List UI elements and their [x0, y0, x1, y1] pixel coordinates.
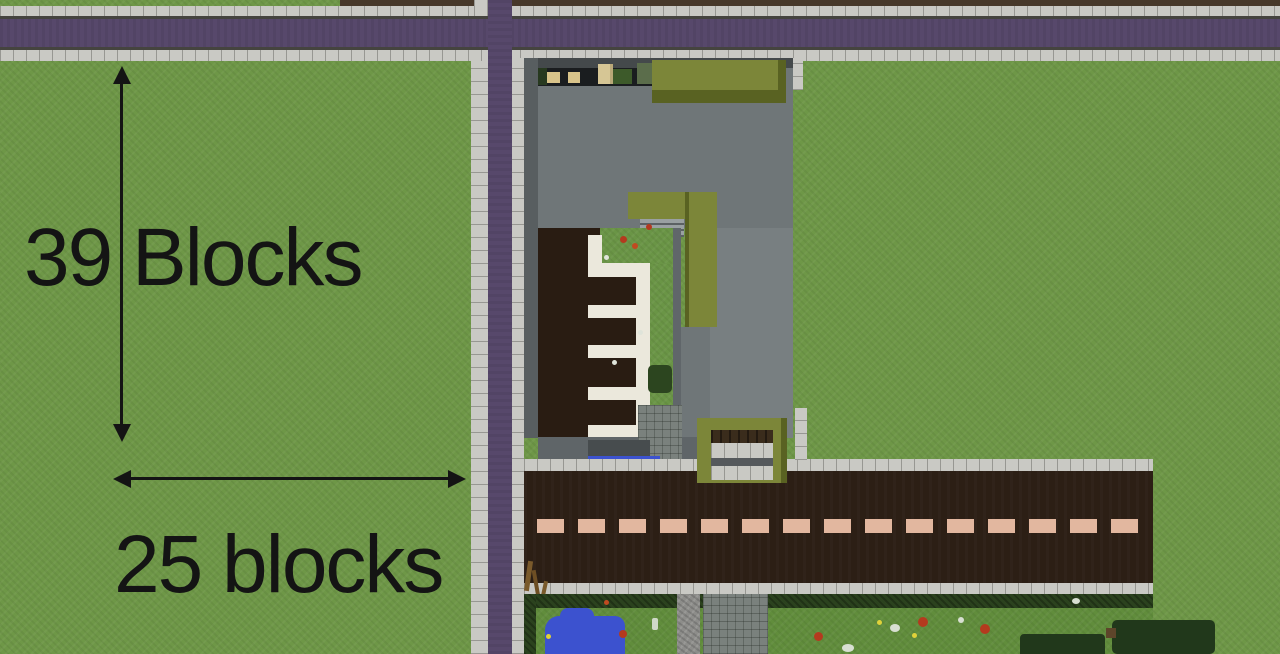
flower-red: [814, 632, 823, 641]
quartz-divider-arm: [588, 345, 636, 358]
canopy-top: [652, 60, 786, 93]
intersection-corner-cap: [474, 0, 488, 16]
building-se-walkway: [795, 408, 807, 460]
flower-red: [619, 630, 627, 638]
width-arrow-line: [121, 477, 457, 480]
quartz-divider-top: [588, 263, 650, 277]
lane-dashes: [537, 519, 1143, 533]
flower-red: [620, 236, 627, 243]
flower-red: [632, 243, 638, 249]
flower-white: [638, 330, 643, 335]
left-street-west-sidewalk: [471, 61, 488, 654]
canopy-top-shade: [652, 90, 786, 103]
entrance-step-shadow: [711, 458, 773, 466]
flower-white: [604, 255, 609, 260]
flower-white: [612, 360, 617, 365]
width-dimension-label: 25 blocks: [114, 524, 442, 606]
birch-kiosk: [598, 64, 613, 84]
quartz-divider-arm: [588, 387, 636, 400]
garden-bush: [1020, 634, 1105, 654]
entrance-step-upper: [711, 443, 773, 458]
roof-courtyard-plant: [538, 68, 547, 85]
entrance-step-lower: [711, 466, 773, 480]
roof-courtyard-shrubs: [613, 69, 632, 84]
garden-pond-lobe: [560, 608, 594, 628]
garden-hedge-north: [524, 594, 1153, 608]
top-street-north-sidewalk: [0, 6, 1280, 16]
height-arrow-head-up: [113, 66, 131, 84]
flower-yellow: [912, 633, 917, 638]
flower-yellow: [546, 634, 551, 639]
top-street-asphalt: [0, 19, 1280, 47]
south-lintel: [588, 440, 650, 456]
birch-crate: [547, 72, 560, 83]
minecraft-aerial-screenshot: 39 Blocks 25 blocks: [0, 0, 1280, 654]
quartz-divider-nub: [588, 235, 602, 265]
courtyard-east-wall: [673, 228, 681, 410]
flower-red: [604, 600, 609, 605]
bottom-road-north-sidewalk: [524, 459, 1153, 471]
flower-red: [980, 624, 990, 634]
white-flower-bed: [637, 63, 652, 84]
canopy-mid-column: [685, 192, 717, 327]
width-arrow-head-right: [448, 470, 466, 488]
width-arrow-head-left: [113, 470, 131, 488]
flower-white: [842, 644, 854, 652]
garden-bush: [1112, 620, 1215, 654]
height-dimension-label: 39 Blocks: [24, 217, 362, 299]
birch-crate: [568, 72, 580, 83]
bush-log: [1106, 628, 1116, 638]
bottom-road-south-sidewalk: [524, 583, 1153, 594]
flower-white: [890, 624, 900, 632]
left-street-asphalt: [488, 0, 512, 654]
building-ne-walkway: [793, 58, 803, 90]
building-roof-east-wing: [710, 228, 793, 438]
flower-white: [958, 617, 964, 623]
canopy-top-edge: [778, 60, 786, 103]
flower-white: [1072, 598, 1080, 604]
stone-walkway: [703, 594, 768, 654]
left-street-east-sidewalk: [512, 58, 524, 654]
height-arrow-head-down: [113, 424, 131, 442]
entrance-lintel: [711, 430, 773, 443]
flower-white: [652, 618, 658, 630]
flower-red: [918, 617, 928, 627]
flower-red: [646, 224, 652, 230]
courtyard-bush: [648, 365, 672, 393]
flower-yellow: [877, 620, 882, 625]
gravel-path: [677, 594, 700, 654]
quartz-divider-arm: [588, 305, 636, 318]
garden-hedge-west: [524, 594, 536, 654]
building-west-wall: [524, 58, 538, 438]
